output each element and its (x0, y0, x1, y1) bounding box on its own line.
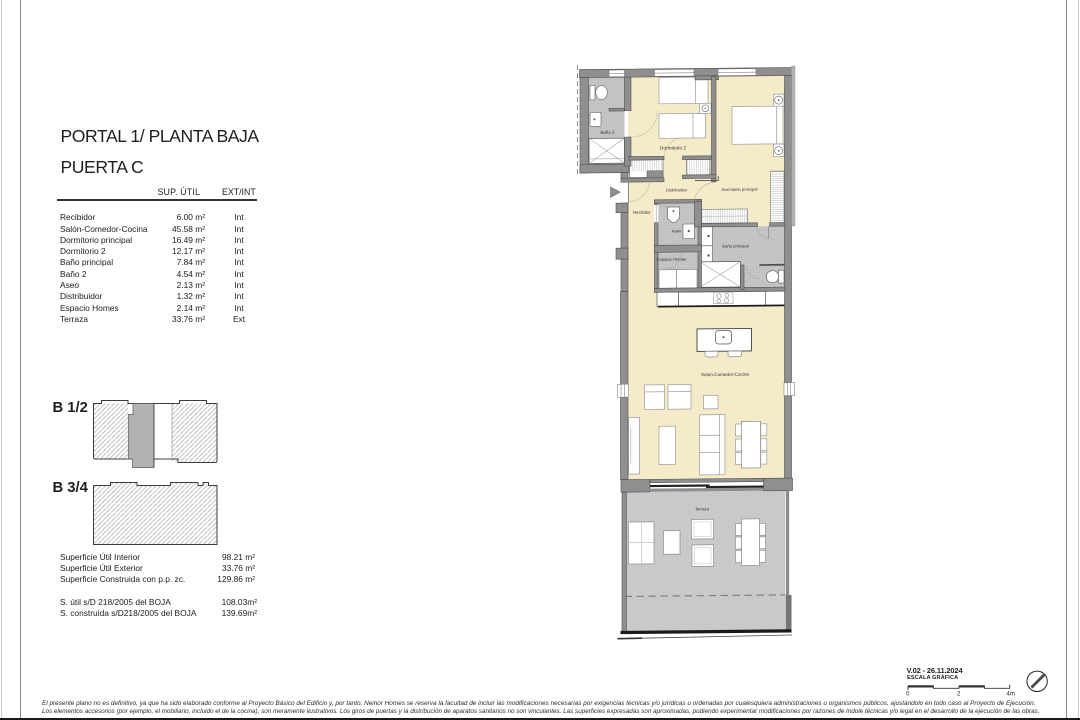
svg-text:Baño 2: Baño 2 (601, 130, 615, 135)
svg-text:Terraza: Terraza (695, 506, 710, 511)
svg-text:Recibidor: Recibidor (633, 210, 651, 215)
svg-text:Salón-Comedor-Cocina: Salón-Comedor-Cocina (701, 372, 749, 377)
svg-text:4m: 4m (1007, 691, 1015, 697)
svg-text:Dormitorio principal: Dormitorio principal (721, 187, 757, 192)
svg-text:Distribuidor: Distribuidor (666, 187, 688, 192)
svg-text:2: 2 (957, 691, 961, 697)
svg-text:Baño principal: Baño principal (722, 243, 749, 248)
svg-text:0: 0 (906, 691, 910, 697)
svg-text:Dormitorio 2: Dormitorio 2 (660, 145, 686, 151)
svg-text:Espacio Homes: Espacio Homes (657, 257, 686, 262)
svg-text:Aseo: Aseo (672, 228, 682, 233)
